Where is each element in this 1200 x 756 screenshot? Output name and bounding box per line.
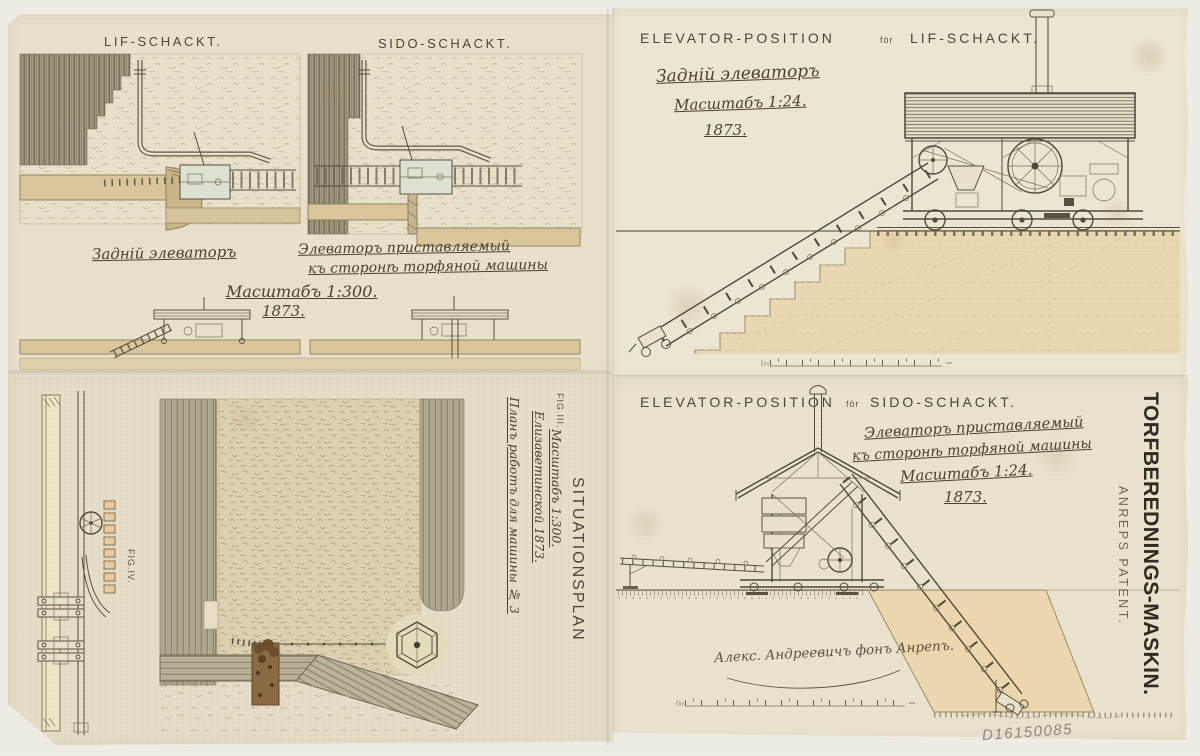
elevator-sido-drawing [612,378,1188,740]
lower-bog-texture [160,683,460,735]
fig3-label: FIG.III. [555,393,565,429]
elevation-sido-small [310,296,580,360]
band-notch [204,601,218,629]
shaft-plan-drawings [8,14,612,373]
sheet-seam-left [8,371,612,376]
drive-wheel [80,512,102,534]
upper-trench [308,204,408,220]
caption-scale: Масштабъ 1:300. [226,282,377,301]
sido-schackt-plan [308,54,582,246]
sheet-top-left: LIF-SCHACKT. SIDO-SCHACKT. [8,14,612,373]
worked-band-left [160,399,216,685]
machine-position-blob [252,639,279,705]
caption-year: 1873. [262,302,305,320]
elevator-paddles [104,501,115,593]
pencil-scribble [962,714,1122,718]
hopper-crates [762,498,806,566]
fig4-label: FIG.IV. [126,549,136,584]
ground-surface [616,590,868,598]
plan-handwriting-2: Елизаветинской 1873. [532,411,547,563]
caption-back-elevator: Задній элеваторъ [92,243,237,264]
drive-belt [922,148,1048,192]
sheet-top-right: ELEVATOR-POSITION för LIF-SCHACKT. Задні… [612,8,1188,378]
capstan-hexagon [386,614,448,676]
drive-wheel [819,548,852,572]
sheet-bottom-right: ELEVATOR-POSITION för SIDO-SCHACKT. Элев… [612,378,1188,740]
plan-handwriting-1: Планъ работъ для машины № 3 [507,397,522,614]
fig4-elevator-side-view [38,391,115,735]
side-shaft [408,194,417,234]
worked-band-right [420,399,464,611]
signature-flourish [727,670,900,688]
machine-roof [905,93,1135,138]
scale-ruler [677,700,915,706]
situationsplan-label: SITUATIONSPLAN [568,477,586,642]
elevator-lif-drawing [612,8,1188,378]
plan-handwriting-3: Масштабъ 1:300. [549,429,564,547]
sheet-bottom-left: FIG.IV. FIG.III. SITUATIONSPLAN Планъ ра… [8,373,612,745]
peat-machine-gable [736,386,900,596]
flywheel [1008,139,1062,193]
lif-schackt-plan [20,54,300,230]
lower-terrace [166,208,300,223]
ground-strip [20,358,580,370]
torfberednings-maskin-title: TORFBEREDNINGS-MASKIN. [1138,392,1162,695]
elevation-lif-small [20,297,300,358]
scale-ruler [762,360,952,366]
chimney [1036,16,1048,94]
chimney-cap [1030,10,1054,17]
chimney [815,388,822,452]
anreps-patent-subtitle: ANREPS PATENT. [1116,486,1130,625]
chimney-cap [810,386,826,395]
hopper [948,166,984,190]
scanned-patent-drawing: LIF-SCHACKT. SIDO-SCHACKT. [0,0,1200,756]
excavation-steps [616,231,1180,354]
sheet-seam-right [612,375,1188,380]
horizontal-conveyor [620,555,764,589]
canal-band [160,655,318,681]
trench-canal [20,175,166,200]
peat-machine-side-view [903,10,1143,230]
tool-box [1064,198,1074,206]
fig3-situationsplan [160,399,478,735]
elevator-plank [42,395,60,731]
gable-roof [736,448,900,501]
